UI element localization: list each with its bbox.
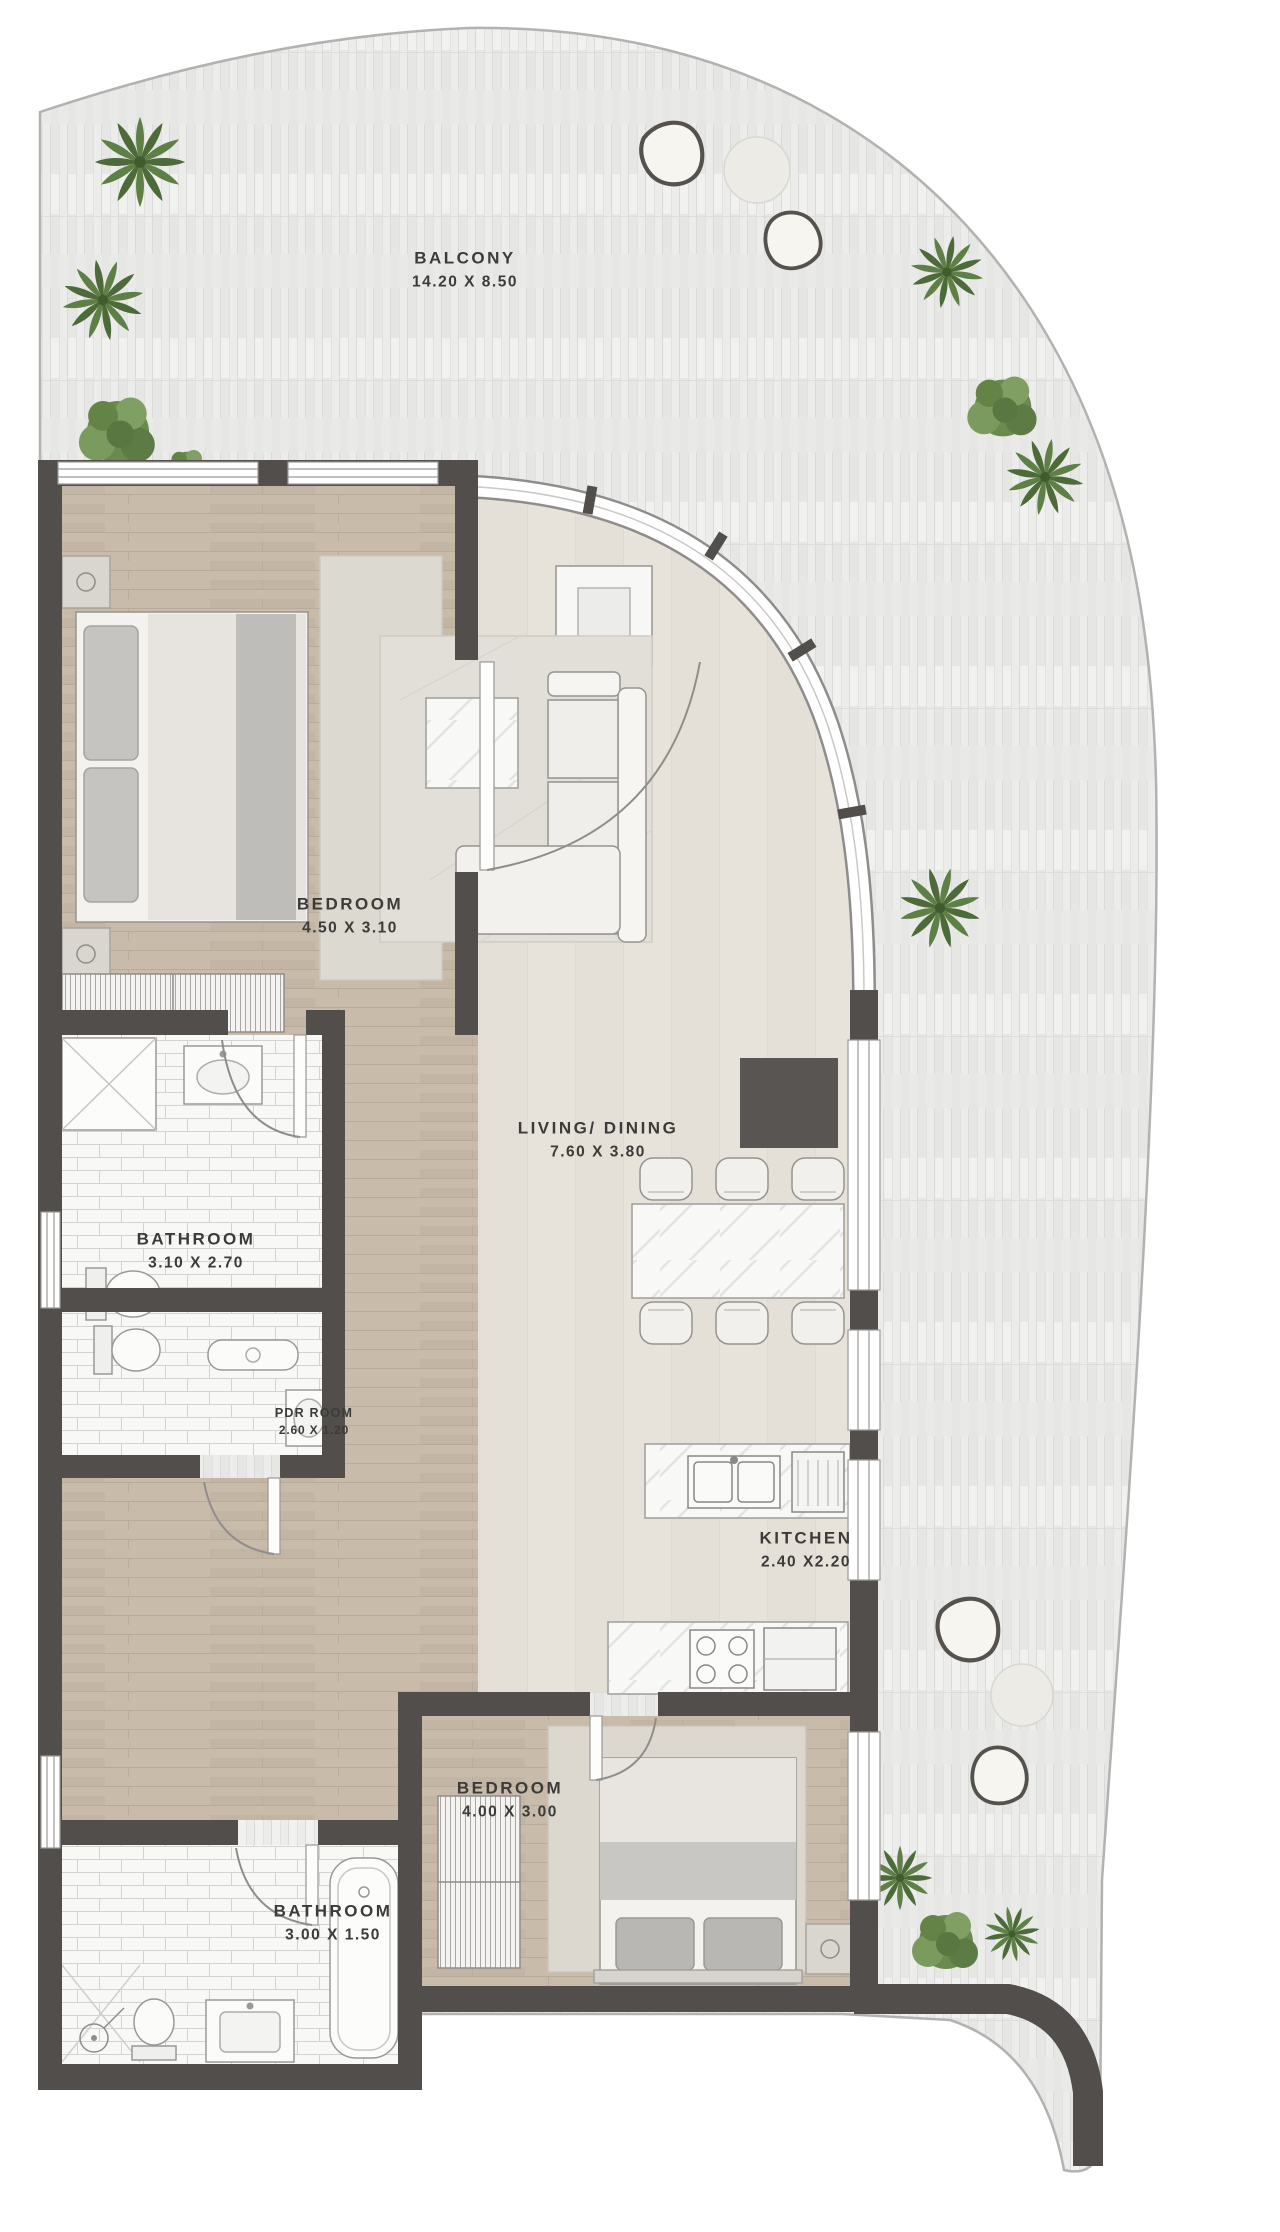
window-icon bbox=[288, 462, 438, 484]
toilet-icon bbox=[132, 2046, 176, 2060]
bean-bag-chair-icon bbox=[972, 1747, 1026, 1803]
coffee-table-icon bbox=[426, 698, 518, 788]
room-name: KITCHEN bbox=[759, 1526, 852, 1551]
room-dimensions: 2.60 X 1.20 bbox=[275, 1422, 353, 1439]
wall-bathroom-2-top bbox=[38, 1820, 238, 1845]
bed-throw bbox=[236, 614, 296, 920]
dining-chair-icon bbox=[640, 1158, 692, 1200]
room-name: BALCONY bbox=[412, 246, 518, 271]
window-icon bbox=[848, 1732, 880, 1900]
bathtub-icon bbox=[330, 1858, 398, 2058]
wall-bathroom-2-bottom bbox=[38, 2064, 422, 2090]
wall-bathroom-1-bottom bbox=[50, 1288, 322, 1312]
sofa-icon bbox=[548, 672, 620, 696]
pillow-icon bbox=[704, 1918, 782, 1970]
wall-bedroom-1-bottom bbox=[50, 1010, 228, 1035]
room-name: BATHROOM bbox=[274, 1899, 393, 1924]
room-dimensions: 3.10 X 2.70 bbox=[137, 1252, 256, 1274]
room-name: PDR ROOM bbox=[275, 1404, 353, 1422]
room-dimensions: 4.00 X 3.00 bbox=[457, 1801, 563, 1823]
sofa-cushion bbox=[548, 700, 618, 778]
room-label-bedroom-2: BEDROOM 4.00 X 3.00 bbox=[457, 1776, 563, 1823]
room-dimensions: 7.60 X 3.80 bbox=[518, 1141, 679, 1163]
window-icon bbox=[58, 462, 258, 484]
nightstand-icon bbox=[806, 1924, 854, 1974]
bean-bag-chair-icon bbox=[724, 137, 790, 203]
room-dimensions: 14.20 X 8.50 bbox=[412, 271, 518, 293]
room-name: BATHROOM bbox=[137, 1227, 256, 1252]
dining-chair-icon bbox=[716, 1158, 768, 1200]
wall-bedroom-2-left bbox=[398, 1692, 422, 2064]
room-label-bedroom-1: BEDROOM 4.50 X 3.10 bbox=[297, 892, 403, 939]
counter-icon bbox=[208, 1340, 298, 1370]
dining-chair-icon bbox=[716, 1302, 768, 1344]
room-label-bathroom-2: BATHROOM 3.00 X 1.50 bbox=[274, 1899, 393, 1946]
wall-bedroom-2-bottom bbox=[422, 1986, 854, 2012]
headboard bbox=[594, 1970, 802, 1983]
wall-kitchen-bottom bbox=[422, 1692, 590, 1716]
window-icon bbox=[848, 1330, 880, 1430]
room-label-living-dining: LIVING/ DINING 7.60 X 3.80 bbox=[518, 1116, 679, 1163]
pillow-icon bbox=[84, 768, 138, 902]
window-icon bbox=[41, 1212, 60, 1308]
wall-pdr-bottom bbox=[50, 1455, 200, 1478]
window-icon bbox=[848, 1040, 880, 1290]
toilet-icon bbox=[94, 1326, 112, 1374]
dining-chair-icon bbox=[792, 1302, 844, 1344]
dining-chair-icon bbox=[640, 1302, 692, 1344]
room-dimensions: 2.40 X2.20 bbox=[759, 1551, 852, 1573]
nightstand-icon bbox=[62, 928, 110, 980]
sofa-icon bbox=[618, 688, 646, 942]
dining-table-icon bbox=[632, 1204, 844, 1298]
wall-bedroom-1-right bbox=[455, 486, 478, 660]
pillow-icon bbox=[84, 626, 138, 760]
room-label-pdr-room: PDR ROOM 2.60 X 1.20 bbox=[275, 1404, 353, 1440]
room-dimensions: 4.50 X 3.10 bbox=[297, 917, 403, 939]
room-label-balcony: BALCONY 14.20 X 8.50 bbox=[412, 246, 518, 293]
room-name: LIVING/ DINING bbox=[518, 1116, 679, 1141]
window-icon bbox=[848, 1460, 880, 1580]
dining-chair-icon bbox=[792, 1158, 844, 1200]
bean-bag-chair-icon bbox=[991, 1664, 1053, 1726]
wall-kitchen-bottom bbox=[658, 1692, 854, 1716]
room-name: BEDROOM bbox=[457, 1776, 563, 1801]
media-unit-icon bbox=[740, 1058, 838, 1148]
wall-pdr-bottom bbox=[280, 1455, 322, 1478]
wall-bedroom-1-right bbox=[455, 872, 478, 1035]
room-dimensions: 3.00 X 1.50 bbox=[274, 1924, 393, 1946]
floor-plan: BALCONY 14.20 X 8.50 BEDROOM 4.50 X 3.10… bbox=[0, 0, 1280, 2232]
wall-bedroom-1-bottom bbox=[306, 1010, 345, 1035]
room-label-kitchen: KITCHEN 2.40 X2.20 bbox=[759, 1526, 852, 1573]
pillow-icon bbox=[616, 1918, 694, 1970]
wall-bathroom-2-top bbox=[318, 1820, 398, 1845]
bed-throw bbox=[600, 1842, 796, 1900]
room-label-bathroom-1: BATHROOM 3.10 X 2.70 bbox=[137, 1227, 256, 1274]
room-name: BEDROOM bbox=[297, 892, 403, 917]
nightstand-icon bbox=[62, 556, 110, 608]
window-icon bbox=[41, 1756, 60, 1848]
